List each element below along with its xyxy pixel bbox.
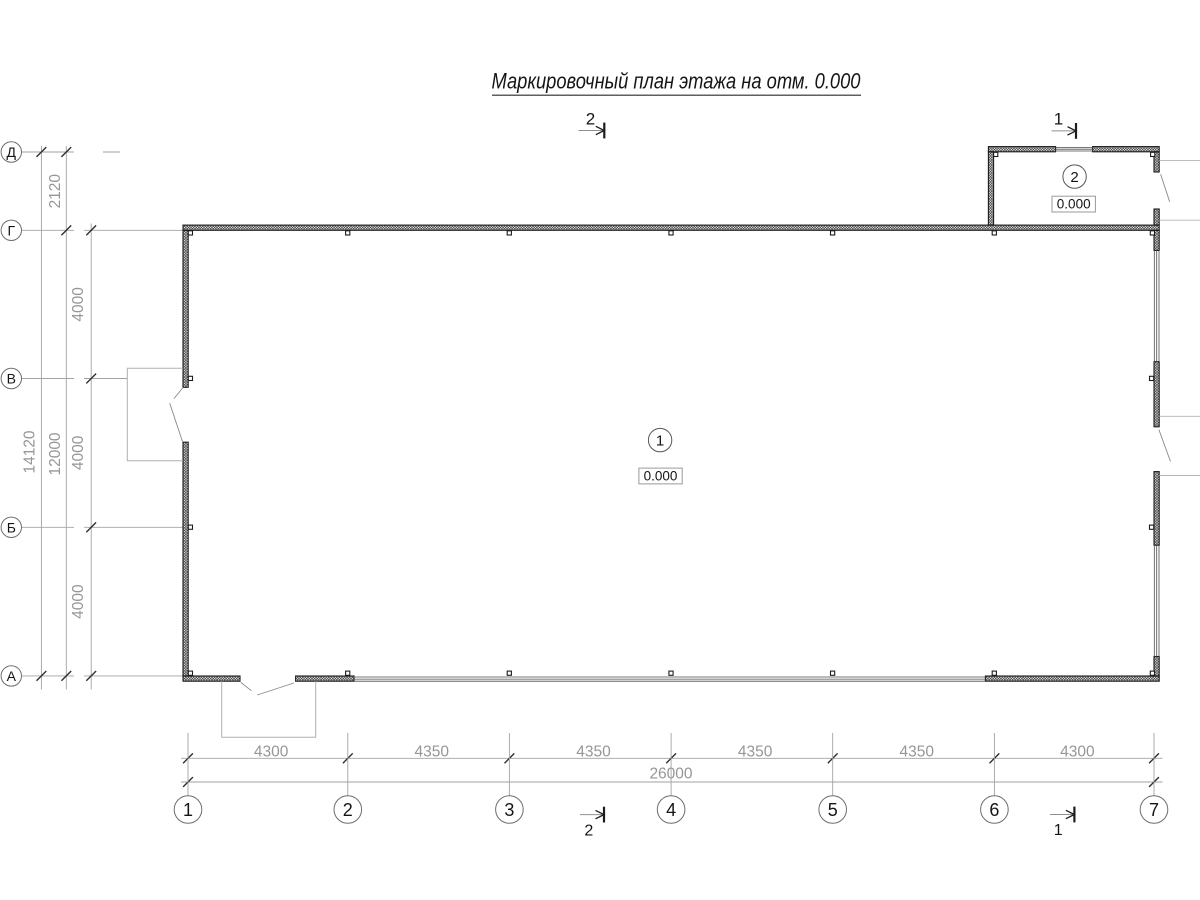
svg-text:4000: 4000 <box>70 287 87 322</box>
svg-text:Б: Б <box>7 519 16 535</box>
svg-text:7: 7 <box>1149 800 1159 820</box>
svg-text:2: 2 <box>343 800 353 820</box>
svg-text:4300: 4300 <box>1060 743 1095 760</box>
svg-text:4300: 4300 <box>254 743 289 760</box>
svg-text:4000: 4000 <box>70 584 87 619</box>
svg-text:0.000: 0.000 <box>1057 197 1091 212</box>
svg-text:14120: 14120 <box>22 430 39 473</box>
svg-text:2120: 2120 <box>47 174 64 209</box>
svg-text:Маркировочный план этажа на от: Маркировочный план этажа на отм. 0.000 <box>492 69 861 94</box>
svg-text:Д: Д <box>7 144 17 160</box>
svg-text:4000: 4000 <box>70 435 87 470</box>
svg-text:0.000: 0.000 <box>644 469 678 484</box>
svg-text:2: 2 <box>586 109 595 128</box>
svg-text:1: 1 <box>1054 110 1063 129</box>
svg-text:А: А <box>7 668 17 684</box>
svg-text:2: 2 <box>1070 169 1078 186</box>
svg-text:Г: Г <box>8 222 16 238</box>
svg-text:6: 6 <box>989 800 999 820</box>
svg-text:1: 1 <box>1054 822 1063 839</box>
svg-text:4350: 4350 <box>415 743 450 760</box>
svg-text:4350: 4350 <box>738 743 773 760</box>
svg-text:2: 2 <box>584 822 593 839</box>
svg-text:В: В <box>7 371 16 387</box>
svg-text:4350: 4350 <box>576 743 611 760</box>
svg-text:4350: 4350 <box>900 743 935 760</box>
svg-text:1: 1 <box>183 800 193 820</box>
svg-text:5: 5 <box>828 800 838 820</box>
svg-text:12000: 12000 <box>47 432 64 475</box>
svg-text:1: 1 <box>656 432 664 449</box>
svg-text:4: 4 <box>666 800 676 820</box>
svg-text:3: 3 <box>504 800 514 820</box>
